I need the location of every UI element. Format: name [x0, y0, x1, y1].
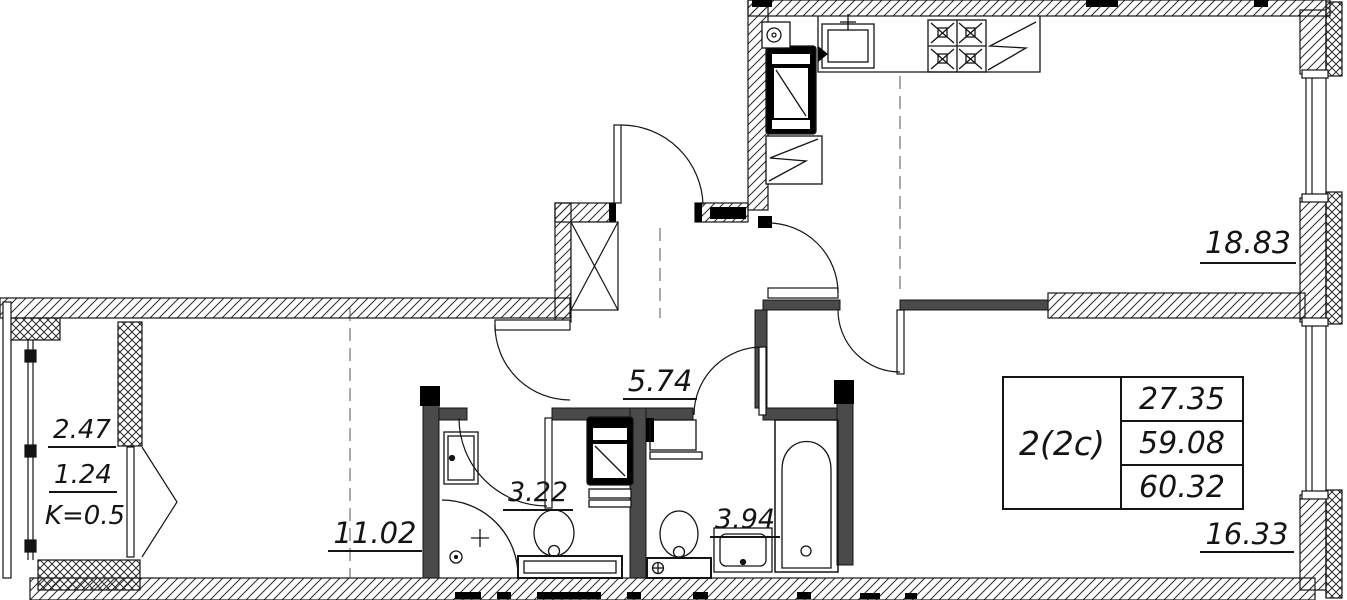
stove-icon: [928, 20, 986, 72]
room-area-label-living-room: 16.33: [1198, 519, 1296, 553]
shower-icon: [442, 500, 518, 576]
kitchen-door: [768, 223, 838, 298]
room-area-label-hall: 5.74: [616, 366, 704, 400]
apartment-type-label: 2(2c): [1019, 424, 1105, 463]
entrance-door: [614, 125, 703, 205]
living-room-door: [838, 310, 904, 374]
wall-caps: [420, 203, 854, 442]
total-area-value: 60.32: [1122, 466, 1242, 508]
kitchen-vent-icon: [762, 22, 790, 48]
kitchen-fixtures: [762, 14, 1040, 184]
room-area-label-bedroom: 11.02: [323, 518, 427, 552]
balcony-area-label: 2.47: [42, 417, 122, 448]
bedroom-door: [495, 320, 570, 400]
floor-area-value: 59.08: [1122, 422, 1242, 466]
living-area-value: 27.35: [1122, 378, 1242, 422]
floor-plan: 18.83 5.74 11.02 3.22 3.94 16.33 2.47 1.…: [0, 0, 1347, 600]
floor-plan-drawing: [0, 0, 1347, 600]
washer-icon: [587, 417, 633, 507]
worktop-break-icon: [988, 22, 1036, 70]
wc-counter-icon: [650, 420, 702, 459]
apartment-areas-column: 27.35 59.08 60.32: [1122, 378, 1242, 508]
fridge-icon: [766, 46, 816, 134]
bathtub-icon: [775, 420, 838, 572]
vent-shaft: [571, 222, 618, 310]
wc-fixtures: [647, 420, 838, 578]
room-area-label-kitchen-living: 18.83: [1198, 228, 1298, 264]
cabinet-break-icon: [766, 136, 822, 184]
apartment-info-table: 2(2c) 27.35 59.08 60.32: [1002, 376, 1244, 510]
kitchen-sink-icon: [818, 14, 874, 68]
exterior-walls: [0, 0, 1342, 600]
bathroom-sink-icon: [444, 432, 478, 484]
balcony-coefficient-label: K=0.5: [34, 503, 136, 530]
balcony-door: [127, 447, 177, 557]
apartment-type-cell: 2(2c): [1004, 378, 1122, 508]
room-area-label-wc: 3.94: [699, 506, 791, 538]
room-area-label-bathroom: 3.22: [496, 479, 580, 511]
balcony-counted-area-label: 1.24: [46, 462, 120, 493]
toilet-icon: [518, 510, 622, 578]
